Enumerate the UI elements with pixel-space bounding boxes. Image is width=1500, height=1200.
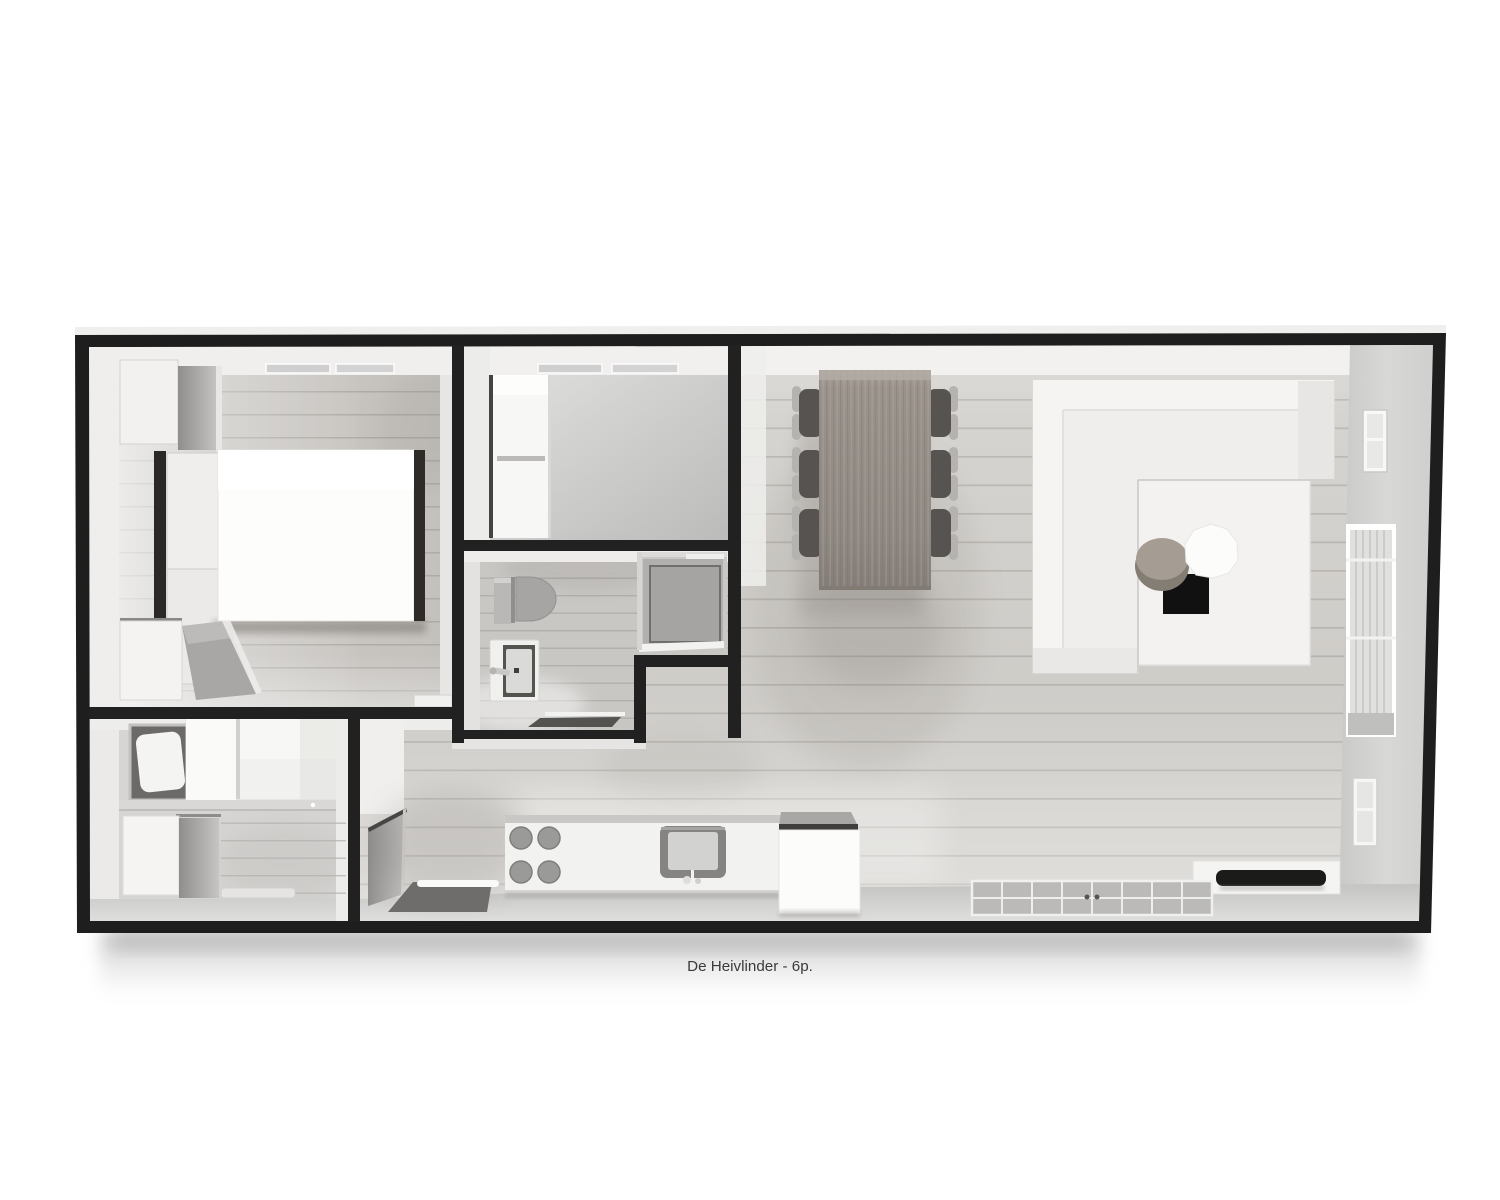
svg-text:De Heivlinder - 6p.: De Heivlinder - 6p. <box>687 958 813 975</box>
